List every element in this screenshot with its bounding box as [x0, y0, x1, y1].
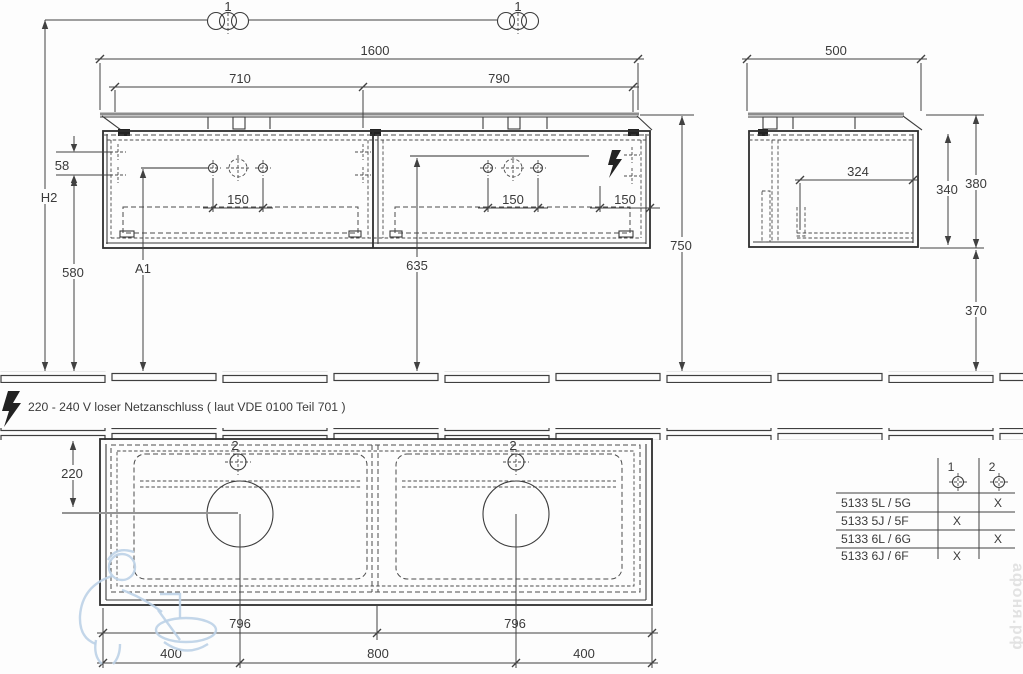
dim-796-left-value: 796	[229, 616, 251, 631]
lightning-bolt-note-icon	[2, 391, 21, 427]
table-row-2: 5133 5J / 5F X	[841, 514, 961, 528]
model-label: 5133 5J / 5F	[841, 514, 909, 528]
table-row-3: 5133 6L / 6G X	[841, 532, 1002, 546]
faucet-callout-left: 2	[225, 438, 251, 475]
dim-h2-label: H2	[41, 190, 58, 205]
dim-150-mid: 150	[478, 178, 548, 212]
dim-790-value: 790	[488, 71, 510, 86]
dim-340-value: 340	[936, 182, 958, 197]
dim-58-value: 58	[55, 158, 69, 173]
dim-635-value: 635	[406, 258, 428, 273]
pos1-cell: X	[953, 514, 961, 528]
faucet-callout-right: 2	[503, 438, 529, 475]
dim-150-left: 150	[203, 178, 273, 212]
table-row-4: 5133 6J / 6F X	[841, 549, 961, 563]
mount-cross-marks	[110, 144, 640, 184]
dim-710-value: 710	[229, 71, 251, 86]
pos2-cell: X	[994, 532, 1002, 546]
dim-150-right-value: 150	[614, 192, 636, 207]
dim-1600: 1600	[95, 43, 644, 110]
dim-580-value: 580	[62, 265, 84, 280]
model-label: 5133 6L / 6G	[841, 532, 911, 546]
hinge-callout-left: 1	[208, 0, 249, 34]
floor-hatch-strip	[0, 371, 1023, 383]
dim-150-left-value: 150	[227, 192, 249, 207]
table-col1-label: 1	[948, 460, 955, 474]
site-watermark: афоня.рф	[1009, 563, 1023, 651]
front-elevation: 1 1 1600 710 790	[35, 0, 701, 371]
table-col2-header: 2	[989, 460, 1008, 491]
model-label: 5133 5L / 5G	[841, 496, 911, 510]
lightning-bolt-icon	[608, 150, 622, 178]
dim-380-value: 380	[965, 176, 987, 191]
table-row-1: 5133 5L / 5G X	[841, 496, 1002, 510]
countertop-side	[748, 114, 922, 130]
dim-220: 220	[55, 441, 238, 513]
table-col2-label: 2	[989, 460, 996, 474]
cabinet-front	[103, 131, 650, 248]
dim-a1-label: A1	[135, 261, 151, 276]
dim-400-right-value: 400	[573, 646, 595, 661]
variant-table: 1 2 5133 5L / 5G X 5133 5J / 5F X 5133 6…	[836, 458, 1015, 563]
faucet-callout-left-label: 2	[231, 438, 238, 453]
countertop-plan	[100, 439, 652, 605]
table-col1-header: 1	[948, 460, 967, 491]
cabinet-side	[749, 131, 918, 247]
side-view: 500 324 340 380 370	[742, 43, 994, 371]
power-note-text: 220 - 240 V loser Netzanschluss ( laut V…	[28, 400, 346, 414]
faucet-holes-left	[205, 155, 271, 181]
technical-drawing-page: 1 1 1600 710 790	[0, 0, 1023, 674]
power-note: 220 - 240 V loser Netzanschluss ( laut V…	[2, 391, 346, 427]
dim-750-value: 750	[670, 238, 692, 253]
dim-580: 580	[57, 177, 90, 371]
dim-1600-value: 1600	[361, 43, 390, 58]
dim-635: 635	[399, 156, 589, 371]
dim-500: 500	[742, 43, 927, 111]
dim-220-value: 220	[61, 466, 83, 481]
dim-370: 370	[958, 250, 994, 371]
model-label: 5133 6J / 6F	[841, 549, 909, 563]
dim-800-value: 800	[367, 646, 389, 661]
dim-324: 324	[795, 164, 919, 230]
plan-view: 2 2 220 796 796 400	[55, 438, 658, 668]
hinge-callout-right: 1	[498, 0, 539, 34]
dim-790: 790	[363, 71, 639, 112]
dim-h2: H2	[35, 20, 497, 371]
dim-a1: A1	[129, 168, 208, 371]
dim-324-value: 324	[847, 164, 869, 179]
dim-710: 710	[109, 71, 369, 128]
dim-370-value: 370	[965, 303, 987, 318]
dim-500-value: 500	[825, 43, 847, 58]
pos1-cell: X	[953, 549, 961, 563]
faucet-callout-right-label: 2	[509, 438, 516, 453]
dim-150-mid-value: 150	[502, 192, 524, 207]
dim-796-right-value: 796	[504, 616, 526, 631]
hinge-callout-right-label: 1	[514, 0, 521, 14]
pos2-cell: X	[994, 496, 1002, 510]
countertop-front	[100, 114, 652, 130]
technical-drawing-canvas: 1 1 1600 710 790	[0, 0, 1023, 674]
hinge-callout-left-label: 1	[224, 0, 231, 14]
faucet-holes-right	[480, 155, 546, 181]
